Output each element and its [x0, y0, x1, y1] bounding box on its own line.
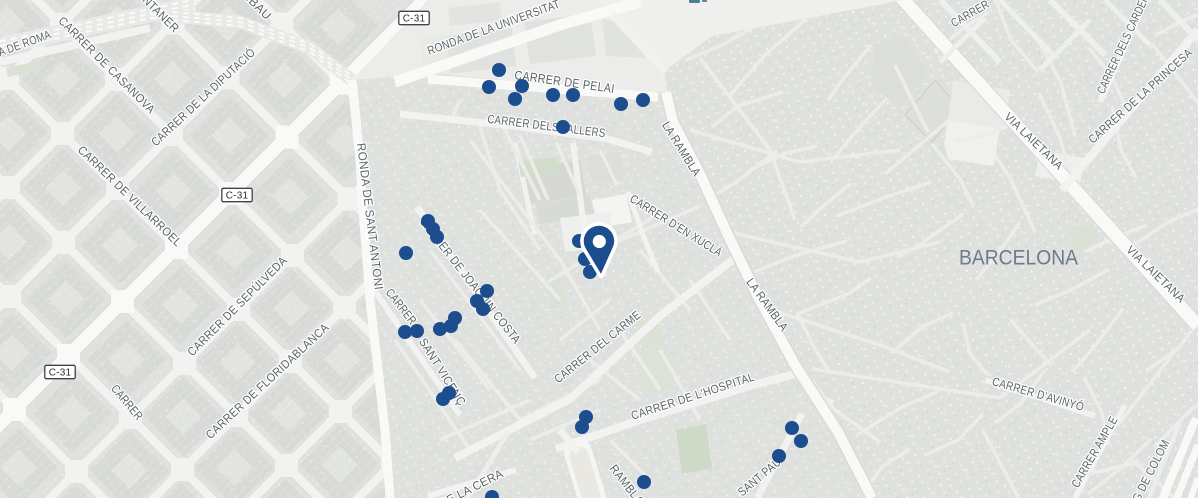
svg-text:BARCELONA: BARCELONA [959, 247, 1078, 270]
svg-text:C-31: C-31 [403, 14, 426, 25]
svg-text:C-31: C-31 [226, 191, 249, 202]
svg-text:C-31: C-31 [49, 368, 72, 379]
